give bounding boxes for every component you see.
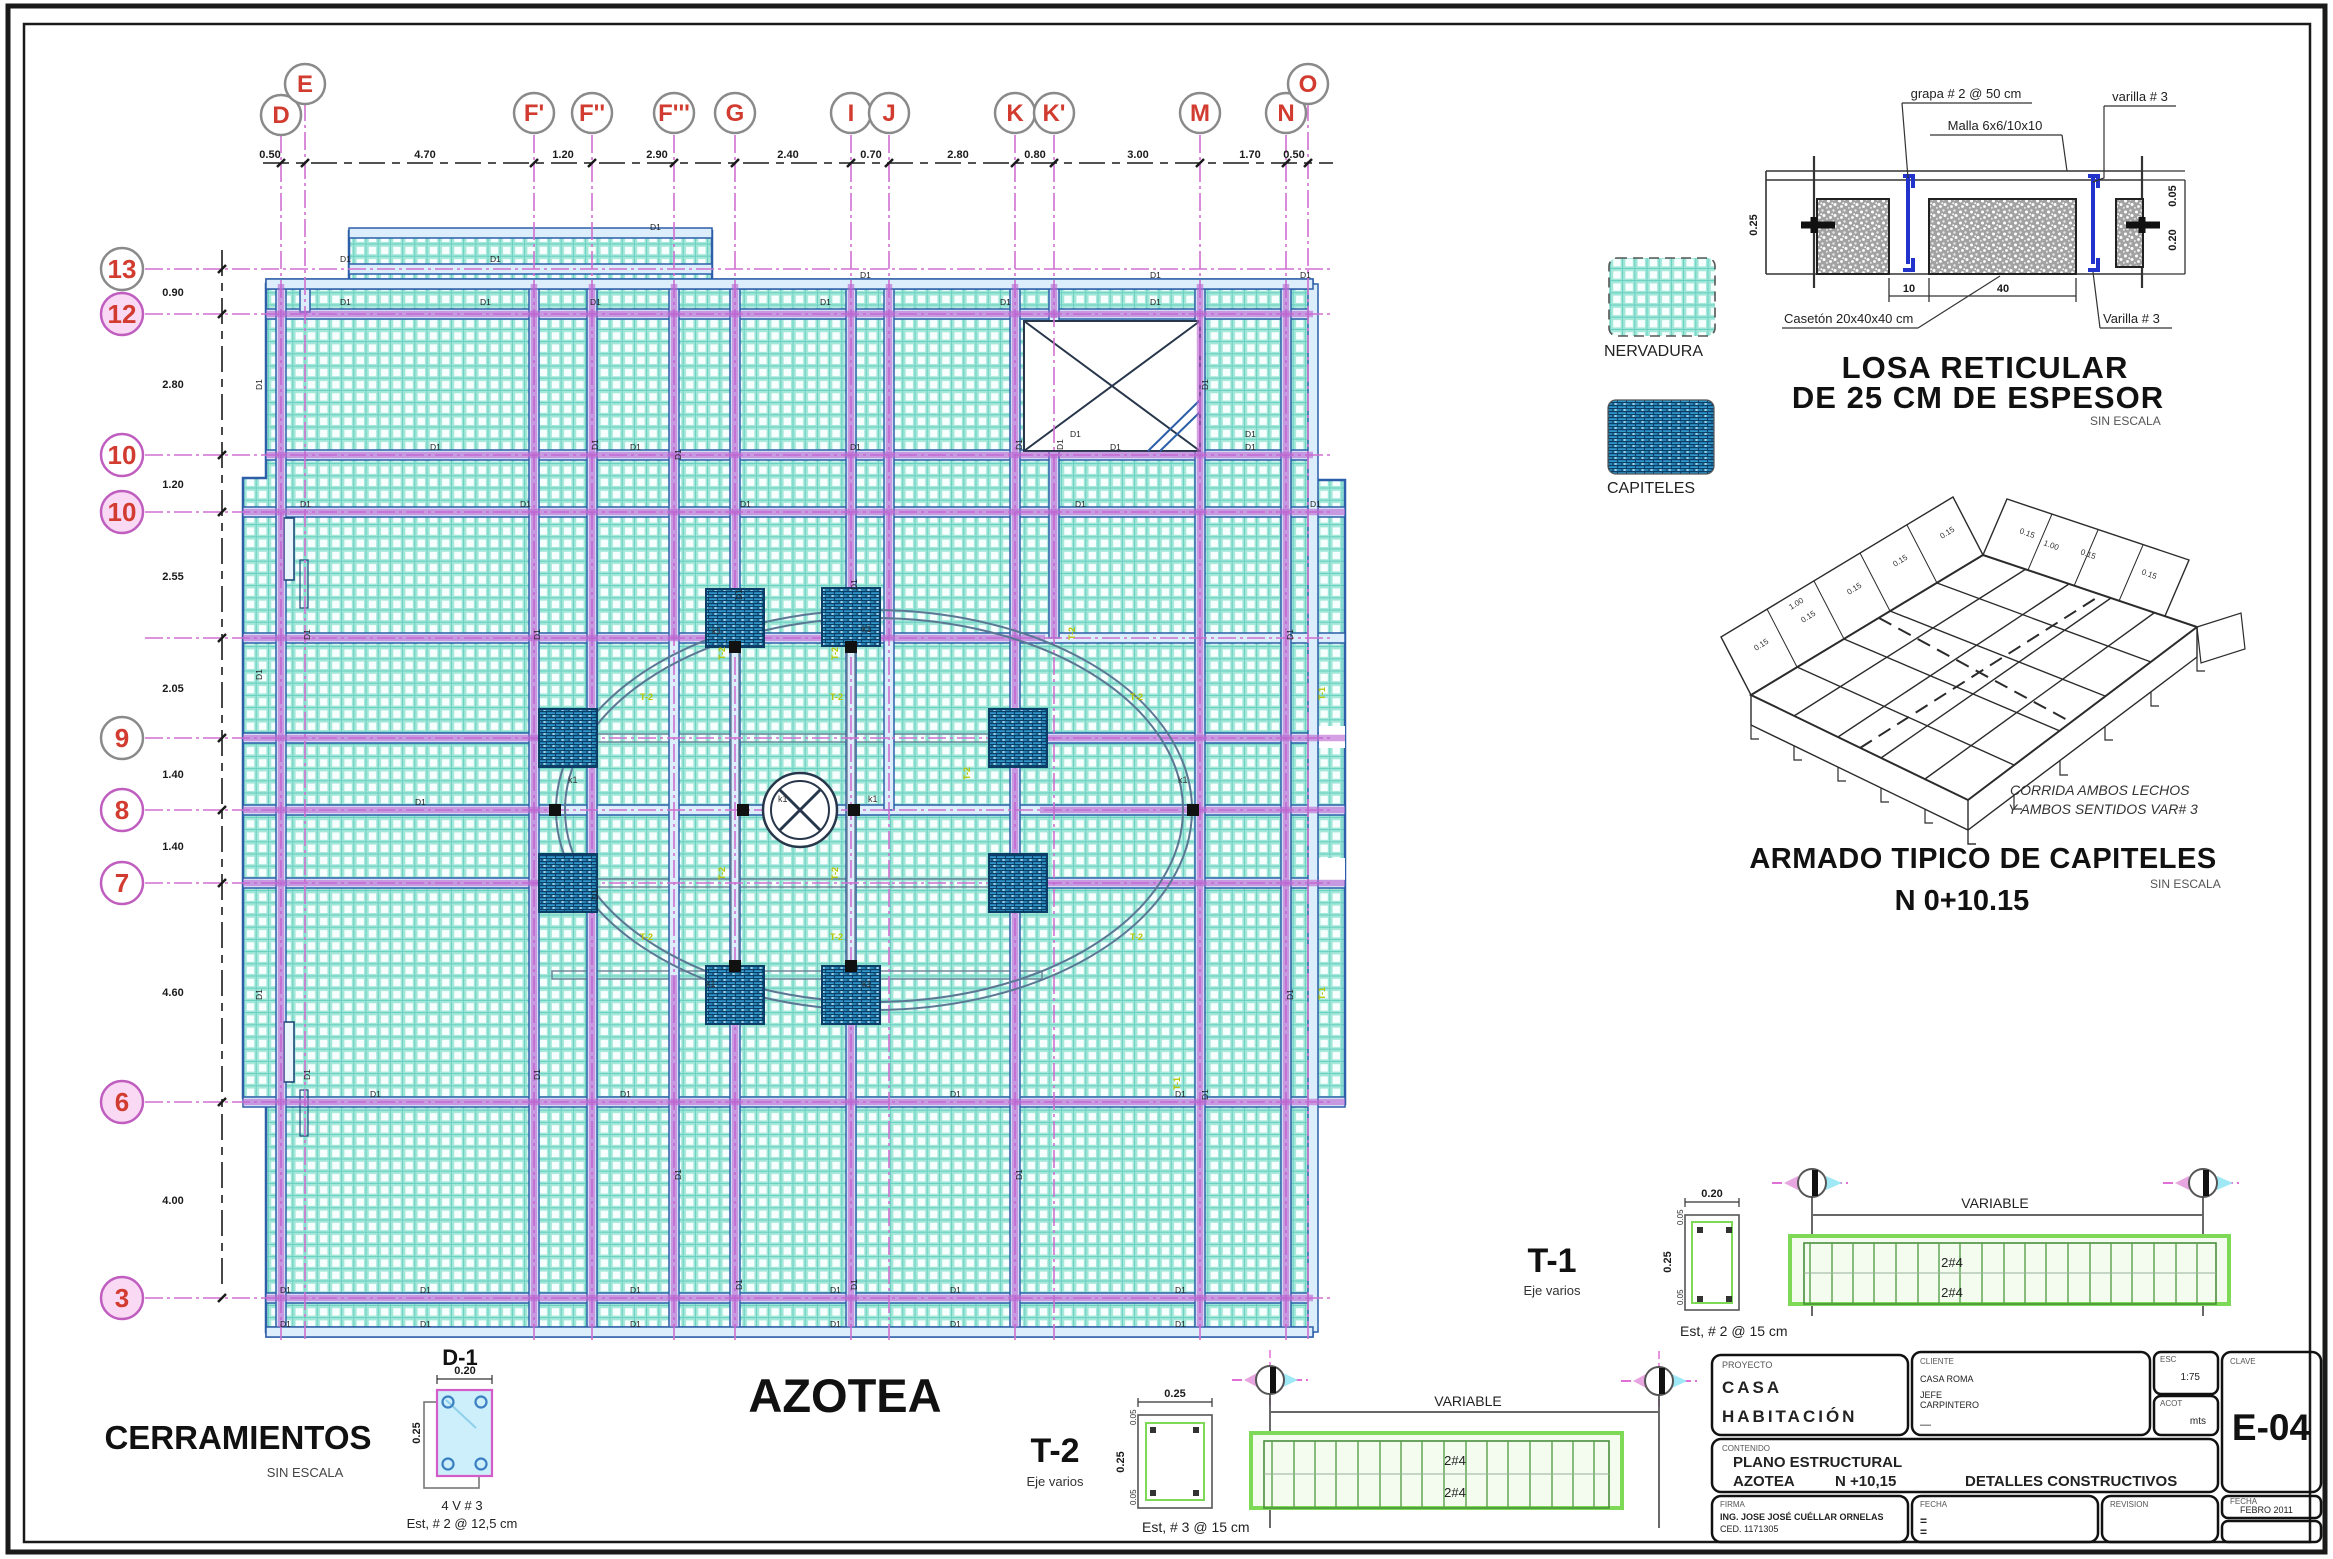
- svg-text:D1: D1: [340, 254, 351, 264]
- svg-text:ESC: ESC: [2160, 1355, 2177, 1364]
- svg-text:D1: D1: [1175, 1285, 1186, 1295]
- svg-text:0.20: 0.20: [2167, 229, 2179, 250]
- svg-text:k1: k1: [706, 979, 716, 989]
- svg-text:D1: D1: [1200, 379, 1210, 390]
- svg-text:D1: D1: [590, 889, 600, 900]
- svg-text:D1: D1: [415, 797, 426, 807]
- svg-text:4.70: 4.70: [414, 149, 435, 161]
- svg-text:1.20: 1.20: [552, 149, 573, 161]
- svg-text:D1: D1: [1055, 439, 1065, 450]
- svg-text:D1: D1: [820, 297, 831, 307]
- svg-text:T-2: T-2: [1130, 932, 1143, 942]
- svg-text:D1: D1: [849, 579, 859, 590]
- svg-text:PROYECTO: PROYECTO: [1722, 1360, 1772, 1370]
- svg-text:D1: D1: [280, 1319, 291, 1329]
- svg-text:AZOTEA: AZOTEA: [748, 1369, 941, 1422]
- svg-text:FIRMA: FIRMA: [1720, 1500, 1746, 1509]
- svg-text:grapa # 2 @ 50 cm: grapa # 2 @ 50 cm: [1911, 86, 2022, 101]
- svg-text:N: N: [1277, 100, 1294, 127]
- svg-text:8: 8: [115, 795, 129, 825]
- svg-text:K': K': [1042, 100, 1065, 127]
- svg-text:1.40: 1.40: [162, 769, 183, 781]
- svg-text:D1: D1: [950, 1285, 961, 1295]
- svg-text:D1: D1: [1150, 297, 1161, 307]
- svg-text:Malla 6x6/10x10: Malla 6x6/10x10: [1948, 118, 2043, 133]
- svg-text:Eje varios: Eje varios: [1026, 1474, 1084, 1489]
- svg-text:k1: k1: [568, 775, 578, 785]
- svg-text:D1: D1: [1000, 297, 1011, 307]
- svg-text:T-2: T-2: [1030, 1432, 1079, 1470]
- svg-text:D1: D1: [673, 1169, 683, 1180]
- svg-text:D1: D1: [520, 499, 531, 509]
- svg-text:1.70: 1.70: [1239, 149, 1260, 161]
- svg-text:CLIENTE: CLIENTE: [1920, 1357, 1954, 1366]
- svg-text:12: 12: [108, 299, 137, 329]
- svg-text:D1: D1: [1310, 499, 1321, 509]
- svg-text:T-2: T-2: [1067, 627, 1077, 640]
- svg-text:0.05: 0.05: [1676, 1289, 1685, 1305]
- svg-text:1.20: 1.20: [162, 479, 183, 491]
- svg-text:Casetón 20x40x40 cm: Casetón 20x40x40 cm: [1784, 311, 1913, 326]
- svg-text:D1: D1: [254, 669, 264, 680]
- svg-text:ING. JOSE JOSÉ CUÉLLAR ORNELAS: ING. JOSE JOSÉ CUÉLLAR ORNELAS: [1720, 1512, 1884, 1522]
- svg-text:T-2: T-2: [830, 647, 840, 660]
- svg-text:D1: D1: [950, 1319, 961, 1329]
- svg-text:HABITACIÓN: HABITACIÓN: [1722, 1407, 1857, 1426]
- svg-text:CLAVE: CLAVE: [2230, 1357, 2256, 1366]
- svg-text:D1: D1: [650, 222, 661, 232]
- svg-text:CARPINTERO: CARPINTERO: [1920, 1400, 1979, 1410]
- svg-text:10: 10: [1903, 283, 1915, 295]
- svg-text:F''': F''': [658, 100, 690, 127]
- svg-text:0.25: 0.25: [1662, 1251, 1674, 1272]
- svg-text:2#4: 2#4: [1941, 1285, 1963, 1300]
- svg-text:T-1: T-1: [1527, 1242, 1576, 1280]
- svg-text:N +10,15: N +10,15: [1835, 1473, 1896, 1490]
- svg-text:—: —: [1920, 1419, 1931, 1431]
- svg-text:0.90: 0.90: [162, 287, 183, 299]
- svg-text:DETALLES CONSTRUCTIVOS: DETALLES CONSTRUCTIVOS: [1965, 1473, 2177, 1490]
- svg-text:D1: D1: [734, 1279, 744, 1290]
- svg-text:DE 25 CM DE ESPESOR: DE 25 CM DE ESPESOR: [1792, 380, 2164, 415]
- svg-text:D1: D1: [1285, 989, 1295, 1000]
- svg-text:D1: D1: [302, 1069, 312, 1080]
- svg-text:D1: D1: [1175, 1089, 1186, 1099]
- svg-text:9: 9: [115, 723, 129, 753]
- svg-text:2.80: 2.80: [162, 379, 183, 391]
- svg-text:FEBRO 2011: FEBRO 2011: [2240, 1505, 2293, 1515]
- svg-text:D1: D1: [532, 629, 542, 640]
- svg-text:2#4: 2#4: [1444, 1453, 1466, 1468]
- svg-text:D1: D1: [830, 1319, 841, 1329]
- svg-text:D1: D1: [673, 449, 683, 460]
- svg-text:D1: D1: [1200, 1089, 1210, 1100]
- svg-text:T-2: T-2: [830, 692, 843, 702]
- svg-text:T-2: T-2: [830, 867, 840, 880]
- svg-text:SIN ESCALA: SIN ESCALA: [2150, 877, 2221, 891]
- svg-text:D1: D1: [1075, 499, 1086, 509]
- svg-text:Y AMBOS SENTIDOS VAR# 3: Y AMBOS SENTIDOS VAR# 3: [2008, 801, 2198, 817]
- svg-text:D1: D1: [280, 1285, 291, 1295]
- svg-text:2.55: 2.55: [162, 571, 183, 583]
- svg-text:T-2: T-2: [830, 932, 843, 942]
- svg-text:D1: D1: [740, 499, 751, 509]
- svg-text:k1: k1: [868, 794, 878, 804]
- svg-text:CERRAMIENTOS: CERRAMIENTOS: [104, 1419, 371, 1456]
- svg-text:0.50: 0.50: [1283, 149, 1304, 161]
- svg-text:D1: D1: [340, 297, 351, 307]
- svg-text:varilla # 3: varilla # 3: [2112, 89, 2168, 104]
- svg-text:6: 6: [115, 1087, 129, 1117]
- svg-text:FECHA: FECHA: [1920, 1500, 1948, 1509]
- svg-text:PLANO ESTRUCTURAL: PLANO ESTRUCTURAL: [1733, 1454, 1902, 1471]
- svg-text:ARMADO TIPICO DE CAPITELES: ARMADO TIPICO DE CAPITELES: [1749, 843, 2216, 875]
- svg-text:SIN ESCALA: SIN ESCALA: [267, 1465, 344, 1480]
- svg-text:D1: D1: [1014, 439, 1024, 450]
- svg-text:D1: D1: [630, 1319, 641, 1329]
- svg-text:2#4: 2#4: [1444, 1485, 1466, 1500]
- svg-text:D1: D1: [300, 499, 311, 509]
- svg-text:D1: D1: [590, 439, 600, 450]
- svg-text:VARIABLE: VARIABLE: [1434, 1393, 1501, 1409]
- svg-text:2.05: 2.05: [162, 683, 183, 695]
- svg-text:3.00: 3.00: [1127, 149, 1148, 161]
- svg-text:D1: D1: [1300, 270, 1311, 280]
- svg-text:k1: k1: [712, 626, 722, 636]
- svg-text:Est, # 2 @ 15 cm: Est, # 2 @ 15 cm: [1680, 1323, 1788, 1339]
- svg-text:D1: D1: [420, 1285, 431, 1295]
- svg-text:0.25: 0.25: [1115, 1451, 1127, 1472]
- svg-text:4 V # 3: 4 V # 3: [441, 1498, 482, 1513]
- svg-text:T-2: T-2: [640, 692, 653, 702]
- svg-text:mts: mts: [2190, 1416, 2206, 1427]
- svg-text:k1: k1: [862, 624, 872, 634]
- svg-text:k1: k1: [862, 979, 872, 989]
- svg-text:4.00: 4.00: [162, 1195, 183, 1207]
- svg-text:CONTENIDO: CONTENIDO: [1722, 1444, 1770, 1453]
- svg-text:T-2: T-2: [717, 647, 727, 660]
- svg-text:T-1: T-1: [1317, 687, 1327, 700]
- svg-text:0.20: 0.20: [1701, 1188, 1722, 1200]
- svg-text:0.25: 0.25: [1748, 214, 1760, 235]
- svg-text:D1: D1: [950, 1089, 961, 1099]
- svg-text:CASA ROMA: CASA ROMA: [1920, 1374, 1974, 1384]
- svg-text:T-2: T-2: [717, 867, 727, 880]
- svg-text:D1: D1: [254, 379, 264, 390]
- svg-text:k1: k1: [778, 794, 788, 804]
- svg-text:D1: D1: [734, 589, 744, 600]
- svg-text:CASA: CASA: [1722, 1378, 1782, 1397]
- svg-text:k1: k1: [1178, 775, 1188, 785]
- svg-text:G: G: [726, 100, 745, 127]
- svg-text:Est, # 2 @ 12,5 cm: Est, # 2 @ 12,5 cm: [407, 1516, 518, 1531]
- svg-text:13: 13: [108, 254, 137, 284]
- svg-text:40: 40: [1997, 283, 2009, 295]
- svg-text:D1: D1: [430, 442, 441, 452]
- svg-text:0.50: 0.50: [259, 149, 280, 161]
- svg-text:E-04: E-04: [2232, 1407, 2311, 1448]
- svg-text:J: J: [882, 100, 895, 127]
- svg-text:CORRIDA AMBOS LECHOS: CORRIDA AMBOS LECHOS: [2010, 782, 2190, 798]
- svg-text:2.80: 2.80: [947, 149, 968, 161]
- svg-text:NERVADURA: NERVADURA: [1604, 343, 1703, 360]
- svg-text:0.05: 0.05: [1129, 1489, 1138, 1505]
- svg-text:D1: D1: [1285, 629, 1295, 640]
- svg-text:2.40: 2.40: [777, 149, 798, 161]
- svg-text:0.70: 0.70: [860, 149, 881, 161]
- svg-text:0.25: 0.25: [1164, 1388, 1185, 1400]
- svg-text:E: E: [297, 71, 313, 98]
- svg-text:SIN ESCALA: SIN ESCALA: [2090, 414, 2161, 428]
- svg-text:I: I: [848, 100, 855, 127]
- svg-text:7: 7: [115, 868, 129, 898]
- svg-text:D1: D1: [1150, 270, 1161, 280]
- svg-text:D1: D1: [1110, 442, 1121, 452]
- svg-text:N 0+10.15: N 0+10.15: [1895, 885, 2030, 917]
- svg-text:D: D: [272, 102, 289, 129]
- svg-text:AZOTEA: AZOTEA: [1733, 1473, 1795, 1490]
- svg-text:JEFE: JEFE: [1920, 1390, 1942, 1400]
- svg-text:K: K: [1006, 100, 1024, 127]
- svg-text:O: O: [1299, 71, 1318, 98]
- svg-text:4.60: 4.60: [162, 987, 183, 999]
- svg-text:T-2: T-2: [962, 767, 972, 780]
- svg-text:D1: D1: [830, 1285, 841, 1295]
- svg-text:0.05: 0.05: [1129, 1409, 1138, 1425]
- svg-text:1.40: 1.40: [162, 841, 183, 853]
- svg-text:D1: D1: [849, 1279, 859, 1290]
- svg-text:2#4: 2#4: [1941, 1255, 1963, 1270]
- svg-text:D1: D1: [490, 254, 501, 264]
- svg-text:D1: D1: [630, 1285, 641, 1295]
- svg-text:REVISION: REVISION: [2110, 1500, 2148, 1509]
- svg-text:Varilla # 3: Varilla # 3: [2103, 311, 2160, 326]
- svg-text:D1: D1: [860, 270, 871, 280]
- svg-text:M: M: [1190, 100, 1210, 127]
- svg-text:D1: D1: [302, 629, 312, 640]
- svg-text:Est, # 3 @ 15 cm: Est, # 3 @ 15 cm: [1142, 1519, 1250, 1535]
- svg-text:0.20: 0.20: [454, 1365, 475, 1377]
- svg-text:D1: D1: [1245, 442, 1256, 452]
- svg-text:D1: D1: [480, 297, 491, 307]
- svg-text:D1: D1: [630, 442, 641, 452]
- svg-text:D1: D1: [254, 989, 264, 1000]
- svg-text:D1: D1: [1014, 1169, 1024, 1180]
- svg-text:D1: D1: [850, 442, 861, 452]
- svg-text:CED. 1171305: CED. 1171305: [1720, 1524, 1778, 1534]
- svg-text:D1: D1: [1070, 429, 1081, 439]
- svg-text:D1: D1: [532, 1069, 542, 1080]
- svg-text:Eje varios: Eje varios: [1523, 1283, 1581, 1298]
- svg-text:=: =: [1920, 1525, 1927, 1539]
- svg-text:10: 10: [108, 497, 137, 527]
- svg-text:D1: D1: [420, 1319, 431, 1329]
- svg-text:VARIABLE: VARIABLE: [1961, 1195, 2028, 1211]
- svg-text:10: 10: [108, 440, 137, 470]
- svg-text:D1: D1: [370, 1089, 381, 1099]
- svg-text:T-1: T-1: [1317, 987, 1327, 1000]
- svg-text:0.25: 0.25: [411, 1422, 423, 1443]
- svg-text:ACOT: ACOT: [2160, 1399, 2182, 1408]
- svg-text:2.90: 2.90: [646, 149, 667, 161]
- svg-text:0.05: 0.05: [2167, 185, 2179, 206]
- svg-text:0.05: 0.05: [1676, 1209, 1685, 1225]
- svg-text:F': F': [524, 100, 544, 127]
- svg-text:0.80: 0.80: [1024, 149, 1045, 161]
- svg-text:D1: D1: [620, 1089, 631, 1099]
- svg-text:CAPITELES: CAPITELES: [1607, 480, 1695, 497]
- svg-text:D1: D1: [590, 297, 601, 307]
- svg-text:F'': F'': [579, 100, 605, 127]
- svg-text:3: 3: [115, 1283, 129, 1313]
- svg-text:T-2: T-2: [640, 932, 653, 942]
- svg-text:T-2: T-2: [1130, 692, 1143, 702]
- svg-text:D1: D1: [1245, 429, 1256, 439]
- svg-text:1:75: 1:75: [2181, 1372, 2201, 1383]
- svg-text:D1: D1: [1175, 1319, 1186, 1329]
